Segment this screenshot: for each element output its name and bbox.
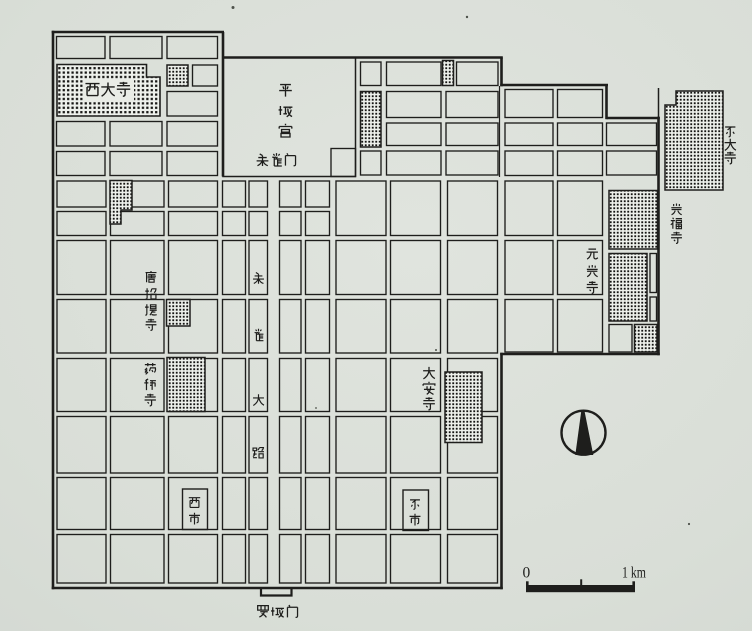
svg-text:1 km: 1 km: [622, 564, 646, 581]
svg-text:0: 0: [523, 564, 531, 581]
